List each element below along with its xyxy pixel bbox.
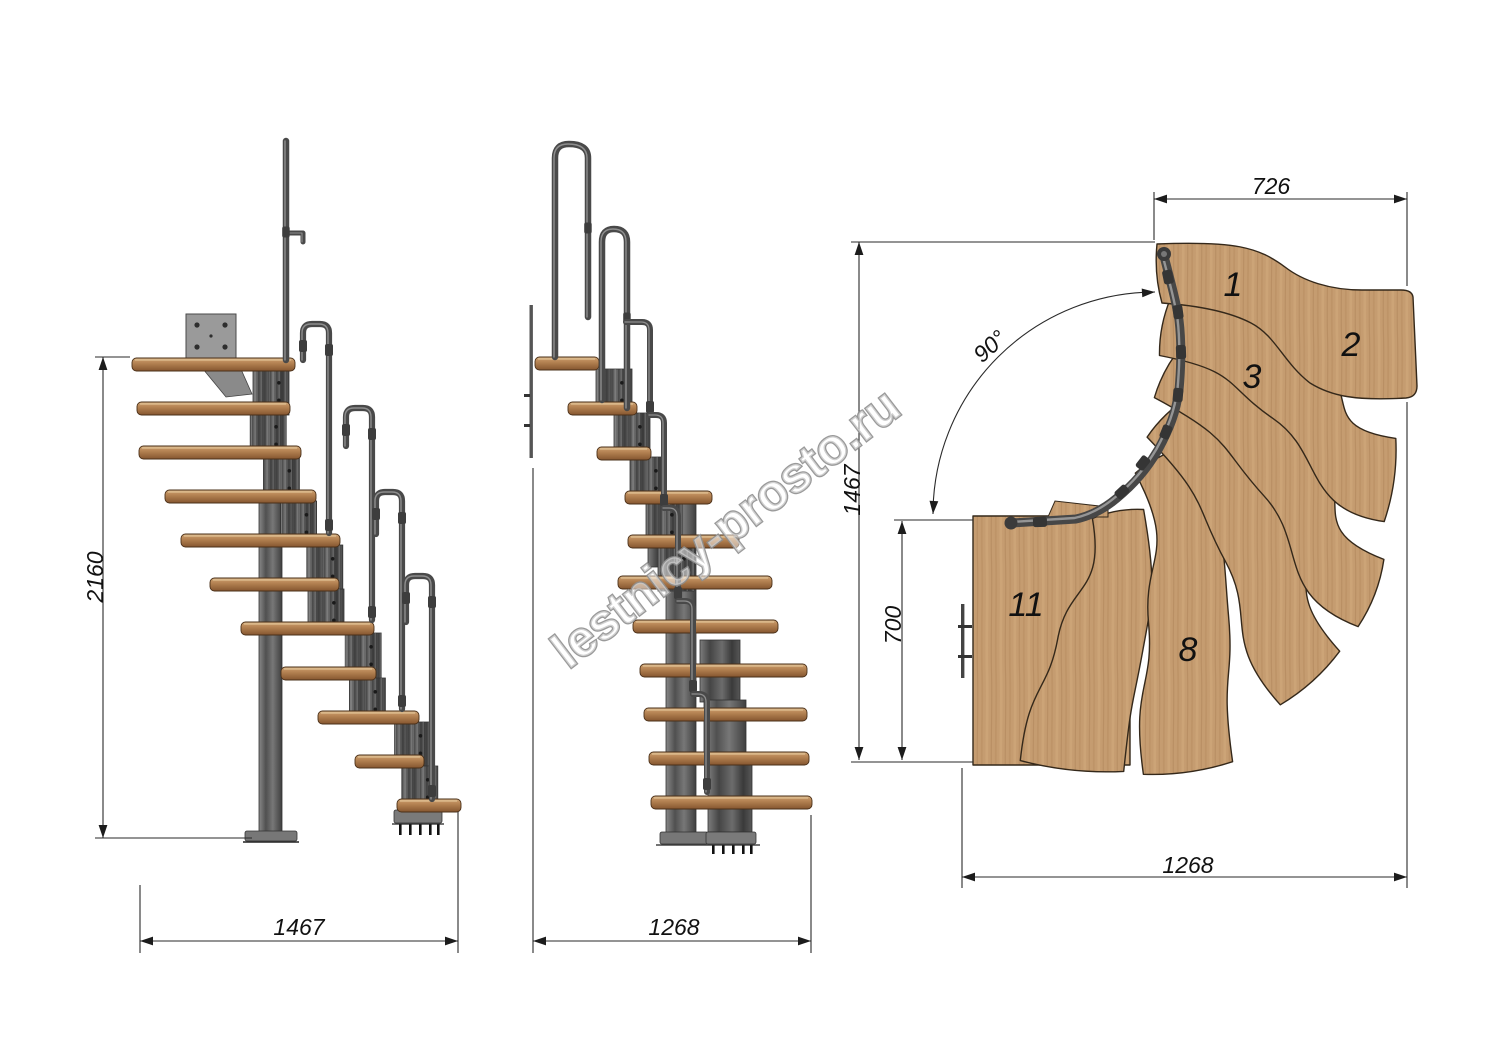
svg-text:3: 3 (1243, 358, 1262, 396)
svg-text:700: 700 (880, 606, 906, 645)
svg-text:726: 726 (1252, 173, 1291, 199)
svg-text:8: 8 (1179, 631, 1198, 669)
svg-text:2160: 2160 (82, 551, 108, 603)
svg-text:1: 1 (1224, 266, 1243, 304)
svg-text:2: 2 (1341, 326, 1361, 364)
svg-text:1467: 1467 (273, 914, 325, 940)
svg-text:1268: 1268 (648, 914, 699, 940)
svg-text:1268: 1268 (1162, 852, 1213, 878)
svg-text:11: 11 (1008, 586, 1043, 624)
